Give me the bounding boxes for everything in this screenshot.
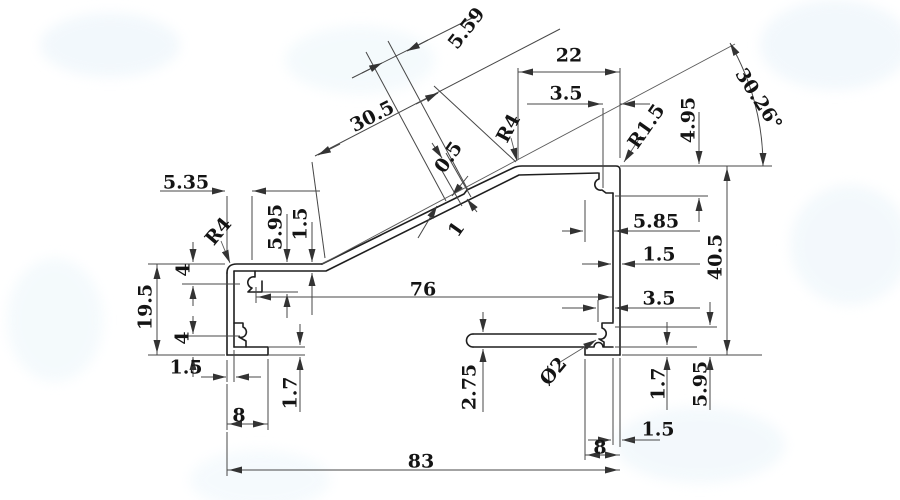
dim-label-dim-83: 83 [408, 451, 434, 473]
dim-label-dim-0-5: 0.5 [430, 138, 467, 178]
dim-label-dim-8-br: 8 [593, 437, 606, 459]
dim-label-dim-r4-left: R4 [201, 213, 237, 249]
profile-right-foot [585, 347, 620, 355]
leader-line [221, 241, 230, 263]
dim-label-dim-r4-slope: R4 [492, 110, 525, 146]
dim-label-dim-30-26: 30.26° [730, 64, 786, 134]
arrow-line [467, 199, 477, 212]
dimension-labels: 5.5930.50.51R4223.5R1.530.26°4.955.355.9… [135, 3, 787, 472]
dim-label-dim-22: 22 [556, 45, 582, 67]
dim-label-dim-5-95-r: 5.95 [690, 361, 712, 407]
dim-label-dim-5-35: 5.35 [163, 172, 209, 194]
dim-label-dim-76: 76 [410, 279, 436, 301]
profile-slope-top-right-outer [322, 166, 620, 355]
arrow-line [318, 144, 340, 155]
dim-label-dim-1: 1 [444, 218, 470, 241]
dim-label-dim-4-lower: 4 [172, 331, 194, 344]
dim-label-dim-5-95-l: 5.95 [265, 204, 287, 250]
dim-label-dim-1-5-br: 1.5 [641, 419, 674, 441]
dim-label-dim-5-85: 5.85 [633, 211, 679, 233]
dim-label-dim-r1-5: R1.5 [624, 100, 670, 153]
profile-inner-ceiling [234, 173, 598, 271]
dim-label-dim-1-5-bl: 1.5 [169, 357, 202, 379]
dim-label-dim-1-5-l: 1.5 [290, 207, 312, 240]
profile-drawing-svg: 5.5930.50.51R4223.5R1.530.26°4.955.355.9… [0, 0, 900, 500]
dim-label-dim-1-7-l: 1.7 [280, 376, 302, 409]
profile-outline [227, 166, 620, 355]
dim-label-dim-1-5-r: 1.5 [642, 244, 675, 266]
dim-label-dim-3-5-top: 3.5 [549, 83, 582, 105]
arrow-line [418, 206, 437, 238]
dim-label-dim-30-5: 30.5 [347, 96, 398, 137]
profile-boss-top-left [248, 271, 262, 292]
dim-label-dim-4-95: 4.95 [678, 97, 700, 143]
watermark-pattern [7, 0, 900, 500]
dim-label-dim-4-upper: 4 [173, 263, 195, 276]
dim-label-dim-1-7-r: 1.7 [648, 367, 670, 400]
ext-line [312, 162, 325, 258]
profile-boss-bottom-left [234, 323, 246, 347]
profile-boss-top-right [595, 173, 613, 193]
dim-label-dim-8-bl: 8 [232, 405, 245, 427]
profile-left-foot [227, 347, 268, 355]
drawing-canvas: 5.5930.50.51R4223.5R1.530.26°4.955.355.9… [0, 0, 900, 500]
dim-label-dim-2-75: 2.75 [459, 364, 481, 410]
dim-label-dim-40-5: 40.5 [705, 234, 727, 280]
dim-label-dim-3-5-r: 3.5 [642, 288, 675, 310]
profile-shelf-bottom-notch [473, 343, 613, 348]
profile-shelf-cap [467, 334, 473, 347]
dim-label-dim-19-5: 19.5 [135, 284, 157, 330]
